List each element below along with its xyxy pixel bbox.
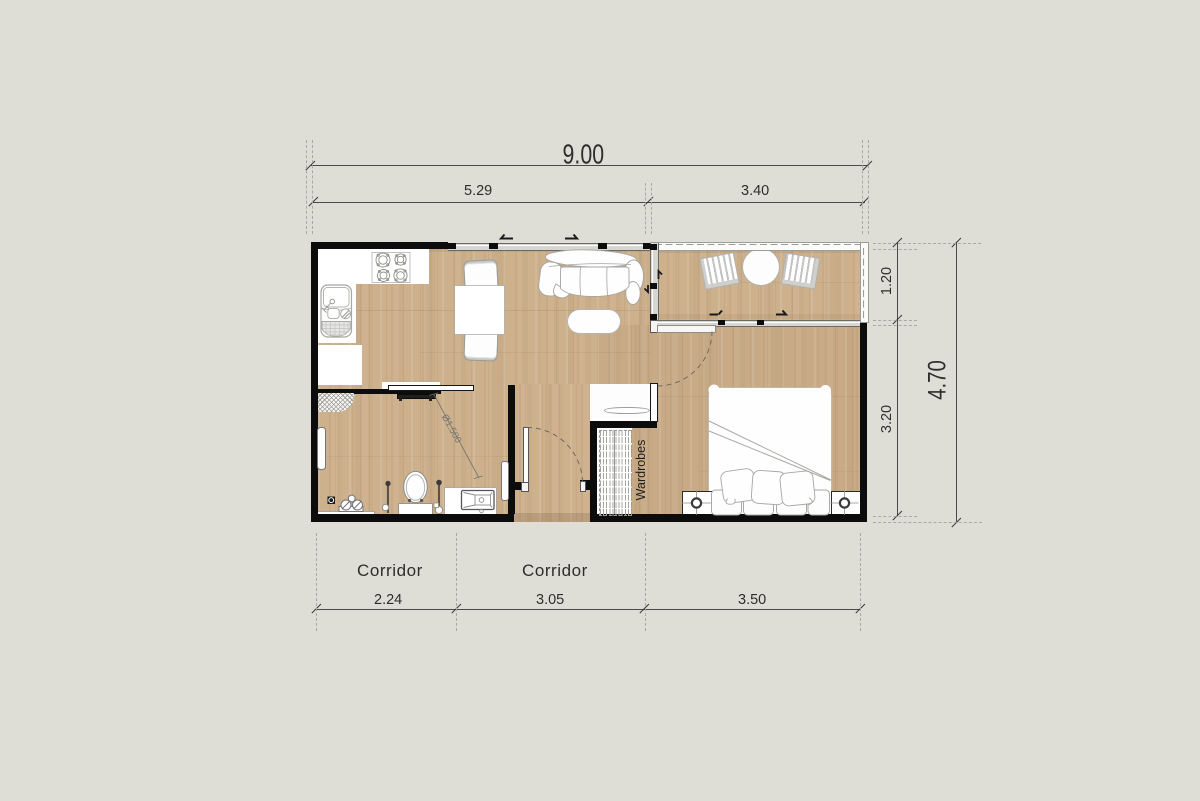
svg-text:Ø1.500: Ø1.500: [439, 412, 464, 445]
